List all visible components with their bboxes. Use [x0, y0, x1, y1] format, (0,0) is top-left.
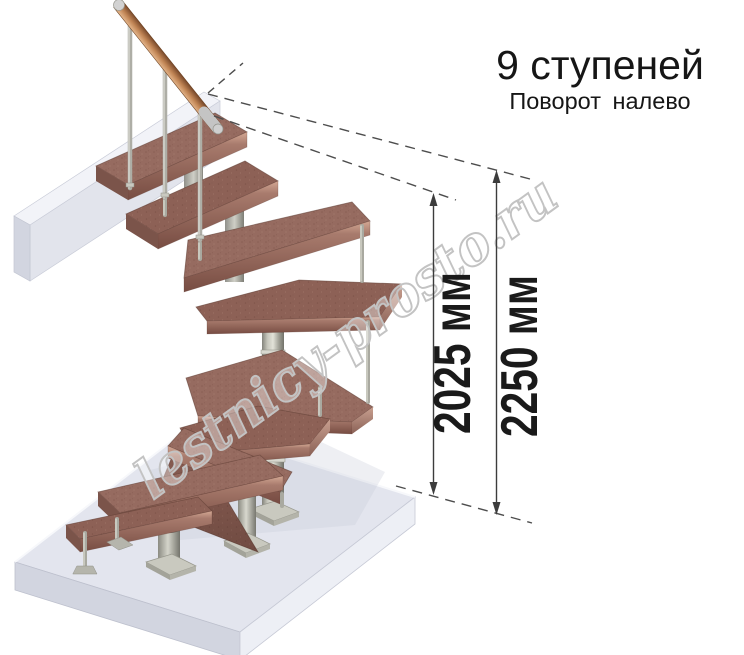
arrow-up-icon — [430, 193, 438, 206]
title-block: 9 ступеней Поворот налево — [496, 42, 704, 114]
upper-level-dash-short — [208, 63, 243, 93]
handrail-end-cap — [213, 124, 223, 134]
floor-level-dash — [396, 486, 532, 523]
arrow-down-icon — [430, 482, 438, 495]
dimension-2025-label: 2025 мм — [424, 272, 482, 434]
page-title: 9 ступеней — [496, 42, 704, 88]
upper-floor-level-dash — [208, 94, 530, 179]
page-subtitle: Поворот налево — [509, 88, 690, 114]
staircase-diagram-page: lestnicy-prosto.ru 2025 мм 2250 мм 9 сту… — [0, 0, 744, 655]
dimension-2250-label: 2250 мм — [491, 275, 549, 437]
handrail-top-cap — [114, 0, 125, 11]
staircase-illustration: lestnicy-prosto.ru 2025 мм 2250 мм 9 сту… — [0, 0, 744, 655]
arrow-down-icon — [493, 502, 501, 515]
arrow-up-icon — [493, 170, 501, 183]
